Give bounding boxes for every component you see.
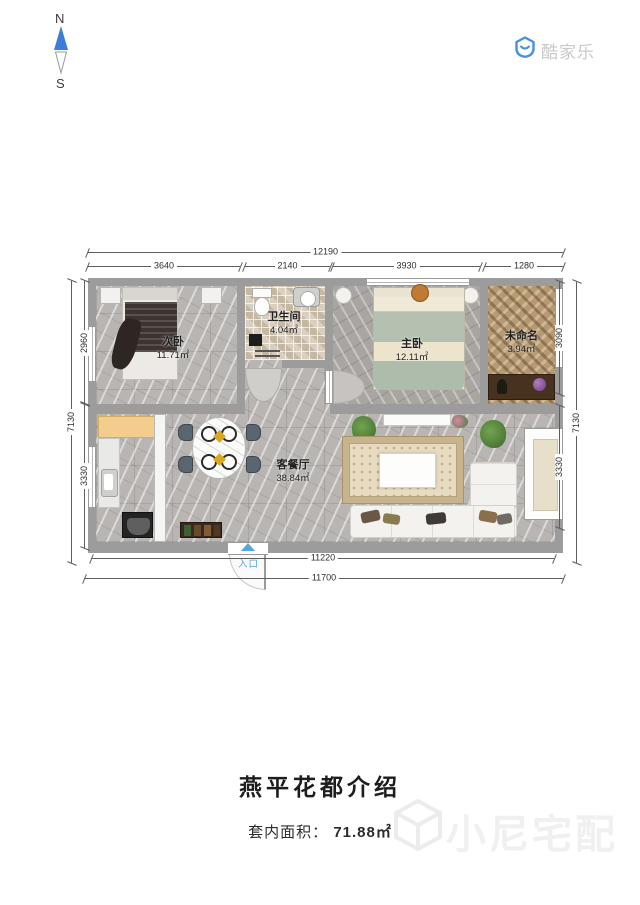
nightstand-bedroom2-left: [100, 287, 121, 304]
nightstand-master-left: [335, 287, 352, 304]
entrance-arrow-icon: [241, 543, 255, 551]
wall-bedroom2-bathroom: [237, 278, 245, 404]
room-label-bedroom2: 次卧 11.71㎡: [133, 336, 213, 362]
bathroom-sink: [293, 287, 320, 307]
wall-master-unnamed: [480, 278, 488, 404]
kitchen-counter-top: [98, 416, 156, 438]
kujiale-logo-icon: [514, 36, 536, 58]
dining-chair-2: [178, 456, 193, 473]
flower-pot: [452, 415, 468, 428]
dim-left-total: 7130: [71, 281, 72, 563]
room-area: 4.04㎡: [246, 325, 322, 336]
sofa-chaise: [470, 462, 517, 506]
wall-bathroom-bottom-b: [282, 360, 333, 368]
room-name: 未命名: [488, 330, 555, 343]
coffee-table: [379, 453, 436, 488]
wall-divider-right: [330, 404, 563, 414]
dim-bottom-inner: 11220: [92, 558, 554, 559]
compass-north-label: N: [55, 11, 64, 26]
kitchen-stove: [122, 512, 153, 538]
bed-bedroom2: [122, 287, 178, 380]
dim-bottom-outer: 11700: [85, 578, 563, 579]
nightstand-bedroom2-right: [201, 287, 222, 304]
dim-top-seg-4: 1280: [485, 266, 563, 267]
wall-left: [88, 278, 96, 553]
dim-top-seg-1: 3640: [88, 266, 240, 267]
towel-rack: [255, 350, 280, 357]
dim-top-total: 12190: [88, 252, 563, 253]
kitchen-partition: [154, 414, 166, 542]
wall-divider-left: [88, 404, 245, 414]
floorplan-page: N S 酷家乐: [0, 0, 640, 905]
area-value: 71.88㎡: [333, 824, 392, 841]
room-label-living: 客餐厅 38.84㎡: [258, 459, 328, 485]
cabinet-unnamed: [488, 374, 555, 400]
tv-console: [383, 414, 451, 426]
room-label-bathroom: 卫生间 4.04㎡: [246, 311, 322, 337]
sideboard: [180, 522, 222, 538]
dim-top-seg-2: 2140: [245, 266, 330, 267]
room-area: 12.11㎡: [366, 352, 458, 363]
kitchen-counter-left: [98, 438, 120, 508]
dim-right-seg-2: 3330: [559, 406, 560, 528]
page-title: 燕平花都介绍: [0, 768, 640, 802]
door-master: [325, 370, 333, 404]
dim-right-total: 7130: [576, 282, 577, 563]
dim-top-seg-3: 3930: [333, 266, 480, 267]
dining-chair-3: [246, 424, 261, 441]
area-label: 套内面积：: [248, 824, 328, 841]
area-subtitle: 套内面积： 71.88㎡: [0, 821, 640, 842]
compass-needle-icon: [52, 26, 70, 76]
room-name: 卫生间: [246, 311, 322, 324]
room-area: 3.94㎡: [488, 344, 555, 355]
plant-right: [480, 420, 506, 448]
room-label-master: 主卧 12.11㎡: [366, 338, 458, 364]
floorplan: 次卧 11.71㎡ 卫生间 4.04㎡ 主卧 12.11㎡ 未命名 3.94㎡ …: [88, 278, 563, 553]
room-label-unnamed: 未命名 3.94㎡: [488, 330, 555, 356]
room-name: 主卧: [366, 338, 458, 351]
wall-bathroom-bottom-a: [237, 360, 245, 368]
entrance-label: 入口: [238, 556, 259, 570]
dim-left-seg-1: 2960: [84, 281, 85, 404]
dim-right-seg-1: 3090: [559, 282, 560, 394]
room-name: 次卧: [133, 336, 213, 349]
wall-bathroom-master: [325, 278, 333, 370]
wall-bottom-right: [268, 542, 563, 553]
wall-bottom-left: [88, 542, 228, 553]
room-area: 38.84㎡: [258, 473, 328, 484]
kujiale-logo-text: 酷家乐: [541, 38, 595, 63]
room-area: 11.71㎡: [133, 350, 213, 361]
living-rug: [342, 436, 464, 504]
sofa: [350, 505, 517, 538]
compass-south-label: S: [56, 76, 65, 91]
dining-chair-1: [178, 424, 193, 441]
room-name: 客餐厅: [258, 459, 328, 472]
dining-table: [192, 417, 246, 479]
dim-left-seg-2: 3330: [84, 404, 85, 548]
